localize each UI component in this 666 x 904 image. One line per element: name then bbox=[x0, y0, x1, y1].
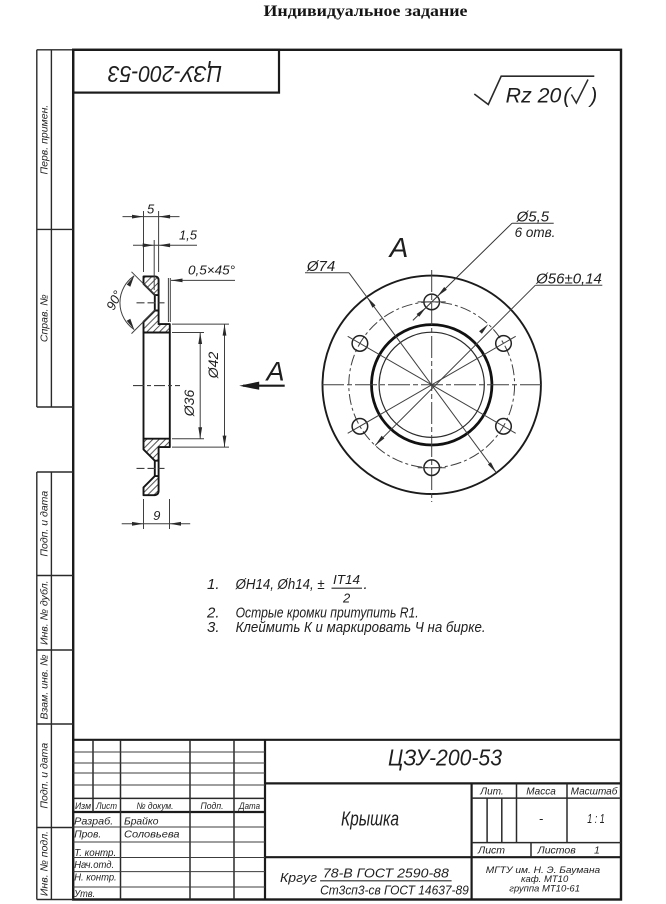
svg-text:1: 1 bbox=[594, 845, 600, 857]
svg-text:3.: 3. bbox=[207, 619, 220, 636]
svg-text:Подп. и дата: Подп. и дата bbox=[39, 743, 51, 809]
svg-text:6 отв.: 6 отв. bbox=[515, 225, 556, 240]
svg-text:Перв. примен.: Перв. примен. bbox=[39, 105, 51, 175]
svg-text:Ø42: Ø42 bbox=[205, 352, 221, 380]
svg-text:Лист: Лист bbox=[95, 801, 117, 812]
svg-text:А: А bbox=[388, 232, 409, 263]
svg-text:Лит.: Лит. bbox=[479, 787, 503, 798]
svg-text:А: А bbox=[264, 357, 284, 387]
svg-text:№ докум.: № докум. bbox=[137, 801, 174, 812]
svg-text:Ø56±0,14: Ø56±0,14 bbox=[535, 270, 602, 287]
svg-text:9: 9 bbox=[153, 508, 160, 523]
svg-text:Ø36: Ø36 bbox=[181, 390, 197, 418]
svg-text:Крышка: Крышка bbox=[341, 809, 399, 831]
svg-text:Клеймить К и маркировать Ч на: Клеймить К и маркировать Ч на бирке. bbox=[236, 619, 486, 636]
svg-text:Масштаб: Масштаб bbox=[571, 786, 618, 798]
svg-text:Соловьева: Соловьева bbox=[124, 829, 180, 841]
svg-text:1,5: 1,5 bbox=[179, 227, 198, 242]
svg-text:ЦЗУ-200-53: ЦЗУ-200-53 bbox=[108, 61, 222, 87]
svg-text:Ø5,5: Ø5,5 bbox=[516, 208, 550, 225]
svg-text:Т. контр.: Т. контр. bbox=[74, 847, 116, 859]
svg-text:IT14: IT14 bbox=[333, 572, 360, 587]
svg-text:Подп. и дата: Подп. и дата bbox=[39, 491, 51, 557]
svg-text:Брайко: Брайко bbox=[124, 816, 159, 828]
svg-text:(: ( bbox=[563, 85, 572, 108]
svg-text:): ) bbox=[587, 85, 597, 108]
svg-text:5: 5 bbox=[147, 202, 155, 217]
svg-text:Ø74: Ø74 bbox=[306, 258, 335, 275]
svg-text:Инв. № подл.: Инв. № подл. bbox=[39, 831, 51, 896]
svg-text:1.: 1. bbox=[207, 576, 220, 593]
svg-text:Разраб.: Разраб. bbox=[74, 816, 113, 828]
svg-text:Н. контр.: Н. контр. bbox=[74, 872, 117, 884]
svg-text:Пров.: Пров. bbox=[74, 829, 101, 841]
svg-text:Листов: Листов bbox=[537, 845, 577, 857]
svg-text:Ст3сп3-св ГОСТ 14637-89: Ст3сп3-св ГОСТ 14637-89 bbox=[320, 883, 469, 898]
svg-text:Подп.: Подп. bbox=[201, 801, 224, 812]
svg-text:ЦЗУ-200-53: ЦЗУ-200-53 bbox=[388, 745, 502, 771]
svg-text:Утв.: Утв. bbox=[73, 888, 95, 900]
svg-text:Кргуг: Кргуг bbox=[280, 870, 318, 885]
svg-text:Индивидуальное задание: Индивидуальное задание bbox=[264, 3, 468, 20]
svg-text:Rz 20: Rz 20 bbox=[506, 85, 562, 108]
svg-text:1 : 1: 1 : 1 bbox=[587, 811, 605, 826]
svg-text:группа МТ10-61: группа МТ10-61 bbox=[509, 884, 580, 895]
svg-text:78-В ГОСТ 2590-88: 78-В ГОСТ 2590-88 bbox=[323, 866, 450, 881]
svg-text:Инв. № дубл.: Инв. № дубл. bbox=[39, 580, 51, 645]
svg-text:Справ. №: Справ. № bbox=[39, 294, 51, 342]
svg-text:0,5×45°: 0,5×45° bbox=[188, 263, 235, 278]
svg-text:Изм: Изм bbox=[75, 801, 91, 812]
svg-text:Взам. инв. №: Взам. инв. № bbox=[39, 655, 51, 720]
svg-text:-: - bbox=[539, 811, 544, 826]
svg-text:Дата: Дата bbox=[238, 801, 260, 812]
svg-text:2: 2 bbox=[342, 591, 351, 606]
svg-text:Масса: Масса bbox=[526, 787, 556, 798]
svg-text:.: . bbox=[364, 576, 368, 593]
svg-text:ØH14, Øh14, ±: ØH14, Øh14, ± bbox=[235, 576, 325, 593]
svg-text:Лист: Лист bbox=[477, 845, 505, 857]
svg-text:Нач.отд.: Нач.отд. bbox=[74, 859, 114, 871]
